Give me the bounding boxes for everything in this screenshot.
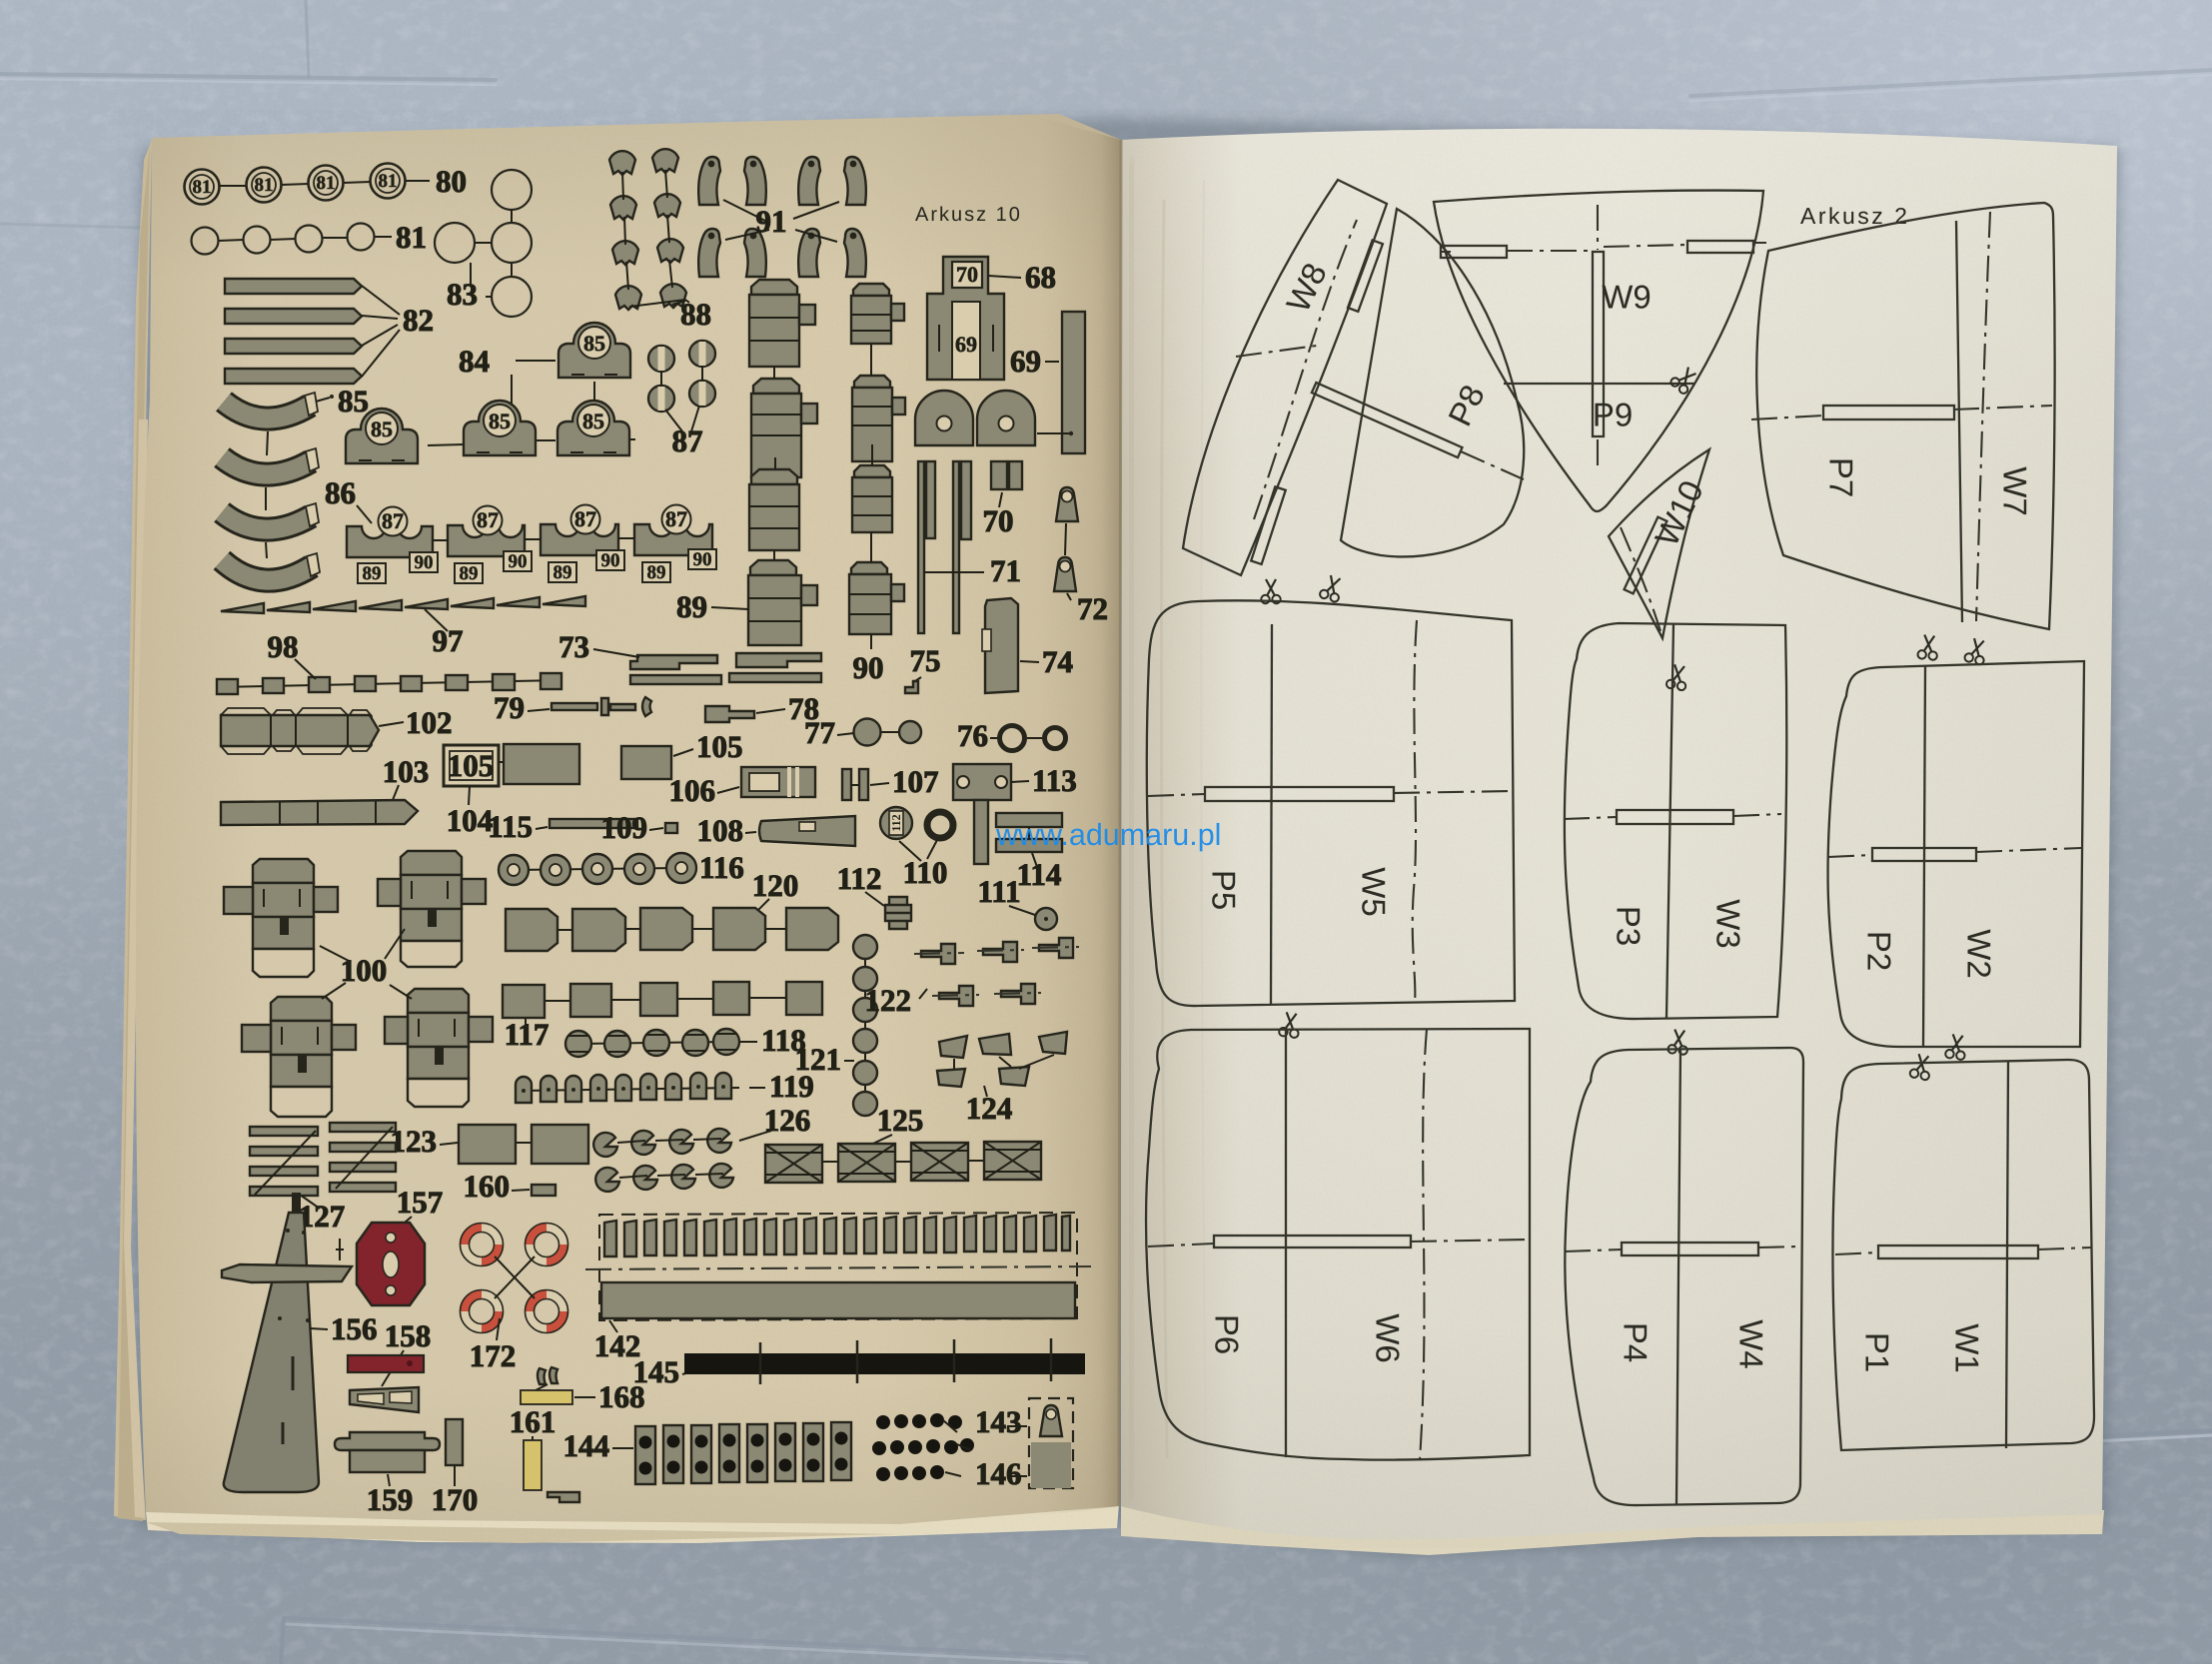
svg-text:84: 84 bbox=[459, 344, 490, 379]
svg-text:71: 71 bbox=[990, 553, 1021, 588]
svg-text:160: 160 bbox=[464, 1169, 511, 1204]
svg-text:77: 77 bbox=[804, 715, 835, 750]
svg-text:P9: P9 bbox=[1593, 397, 1633, 433]
svg-text:P2: P2 bbox=[1860, 931, 1897, 971]
svg-text:106: 106 bbox=[669, 773, 716, 808]
svg-text:126: 126 bbox=[764, 1103, 811, 1138]
svg-text:115: 115 bbox=[488, 809, 533, 844]
svg-text:74: 74 bbox=[1042, 644, 1073, 679]
svg-text:90: 90 bbox=[853, 650, 884, 685]
svg-text:111: 111 bbox=[977, 874, 1020, 909]
svg-text:172: 172 bbox=[470, 1338, 517, 1373]
svg-text:90: 90 bbox=[509, 551, 528, 572]
svg-text:90: 90 bbox=[693, 549, 712, 570]
svg-text:Arkusz 10: Arkusz 10 bbox=[915, 204, 1022, 226]
svg-text:103: 103 bbox=[383, 754, 430, 789]
svg-text:85: 85 bbox=[371, 416, 393, 441]
svg-text:105: 105 bbox=[448, 748, 495, 783]
svg-text:www.adumaru.pl: www.adumaru.pl bbox=[995, 818, 1221, 852]
svg-text:114: 114 bbox=[1017, 857, 1062, 892]
svg-text:87: 87 bbox=[477, 507, 499, 532]
svg-text:P1: P1 bbox=[1858, 1332, 1895, 1372]
svg-text:85: 85 bbox=[582, 409, 604, 433]
svg-text:110: 110 bbox=[903, 855, 948, 890]
svg-text:122: 122 bbox=[865, 983, 912, 1018]
svg-text:156: 156 bbox=[331, 1311, 378, 1346]
svg-text:87: 87 bbox=[382, 508, 404, 533]
svg-text:Arkusz 2: Arkusz 2 bbox=[1800, 203, 1909, 229]
svg-text:157: 157 bbox=[397, 1185, 444, 1220]
svg-text:158: 158 bbox=[385, 1318, 432, 1353]
svg-text:87: 87 bbox=[665, 506, 687, 531]
svg-text:P7: P7 bbox=[1822, 457, 1859, 497]
svg-text:76: 76 bbox=[957, 718, 988, 753]
svg-text:W9: W9 bbox=[1602, 279, 1652, 316]
svg-text:119: 119 bbox=[769, 1069, 814, 1104]
svg-text:90: 90 bbox=[601, 550, 620, 571]
svg-text:91: 91 bbox=[756, 204, 787, 239]
svg-text:89: 89 bbox=[676, 589, 707, 624]
svg-text:90: 90 bbox=[415, 552, 434, 573]
svg-text:89: 89 bbox=[553, 562, 572, 583]
svg-text:107: 107 bbox=[892, 764, 939, 799]
svg-text:146: 146 bbox=[975, 1456, 1022, 1491]
svg-text:72: 72 bbox=[1077, 591, 1108, 626]
svg-text:68: 68 bbox=[1025, 260, 1056, 295]
svg-text:81: 81 bbox=[255, 175, 274, 196]
svg-text:W4: W4 bbox=[1732, 1319, 1769, 1369]
svg-text:70: 70 bbox=[956, 262, 978, 287]
svg-text:P6: P6 bbox=[1208, 1314, 1245, 1354]
svg-text:P5: P5 bbox=[1205, 870, 1242, 910]
svg-text:100: 100 bbox=[341, 953, 388, 988]
svg-text:145: 145 bbox=[633, 1354, 680, 1389]
svg-text:143: 143 bbox=[975, 1404, 1022, 1439]
svg-text:112: 112 bbox=[837, 861, 882, 896]
svg-text:81: 81 bbox=[193, 177, 212, 198]
svg-text:81: 81 bbox=[396, 220, 427, 255]
svg-text:W3: W3 bbox=[1709, 899, 1746, 949]
svg-text:73: 73 bbox=[558, 629, 589, 664]
svg-text:104: 104 bbox=[447, 803, 494, 838]
svg-text:85: 85 bbox=[583, 331, 605, 356]
svg-text:W2: W2 bbox=[1960, 929, 1997, 979]
svg-text:105: 105 bbox=[696, 729, 743, 764]
svg-text:81: 81 bbox=[379, 171, 398, 192]
svg-text:P4: P4 bbox=[1617, 1322, 1654, 1362]
svg-text:87: 87 bbox=[574, 506, 596, 531]
svg-text:W5: W5 bbox=[1355, 867, 1392, 917]
svg-text:W6: W6 bbox=[1369, 1313, 1406, 1363]
svg-text:112: 112 bbox=[889, 814, 903, 831]
svg-text:83: 83 bbox=[447, 277, 478, 312]
svg-text:88: 88 bbox=[680, 297, 711, 332]
svg-text:89: 89 bbox=[460, 563, 479, 584]
svg-text:W7: W7 bbox=[1996, 466, 2033, 516]
svg-text:85: 85 bbox=[489, 409, 511, 433]
svg-text:86: 86 bbox=[325, 475, 356, 510]
svg-text:70: 70 bbox=[983, 503, 1014, 538]
svg-text:161: 161 bbox=[510, 1404, 556, 1439]
svg-text:89: 89 bbox=[363, 563, 382, 584]
svg-text:144: 144 bbox=[563, 1428, 610, 1463]
svg-text:79: 79 bbox=[494, 690, 525, 725]
svg-text:159: 159 bbox=[367, 1482, 414, 1517]
svg-text:69: 69 bbox=[955, 332, 977, 357]
svg-text:97: 97 bbox=[433, 623, 464, 658]
svg-text:85: 85 bbox=[338, 384, 369, 418]
svg-text:81: 81 bbox=[317, 173, 336, 194]
svg-text:108: 108 bbox=[697, 813, 744, 848]
svg-text:75: 75 bbox=[910, 643, 941, 678]
svg-text:89: 89 bbox=[647, 562, 666, 583]
svg-text:P3: P3 bbox=[1610, 906, 1647, 946]
svg-text:170: 170 bbox=[432, 1482, 479, 1517]
svg-text:109: 109 bbox=[601, 810, 648, 845]
svg-text:125: 125 bbox=[877, 1103, 924, 1138]
svg-text:113: 113 bbox=[1032, 763, 1077, 798]
svg-text:124: 124 bbox=[966, 1091, 1013, 1126]
svg-text:W1: W1 bbox=[1948, 1323, 1985, 1373]
svg-text:116: 116 bbox=[699, 850, 744, 885]
svg-text:82: 82 bbox=[403, 303, 434, 338]
svg-text:102: 102 bbox=[406, 705, 453, 740]
svg-text:123: 123 bbox=[391, 1124, 438, 1159]
svg-text:80: 80 bbox=[436, 164, 467, 199]
svg-text:98: 98 bbox=[268, 629, 299, 664]
svg-text:69: 69 bbox=[1010, 344, 1041, 379]
svg-text:87: 87 bbox=[672, 423, 703, 458]
svg-text:120: 120 bbox=[752, 868, 799, 903]
